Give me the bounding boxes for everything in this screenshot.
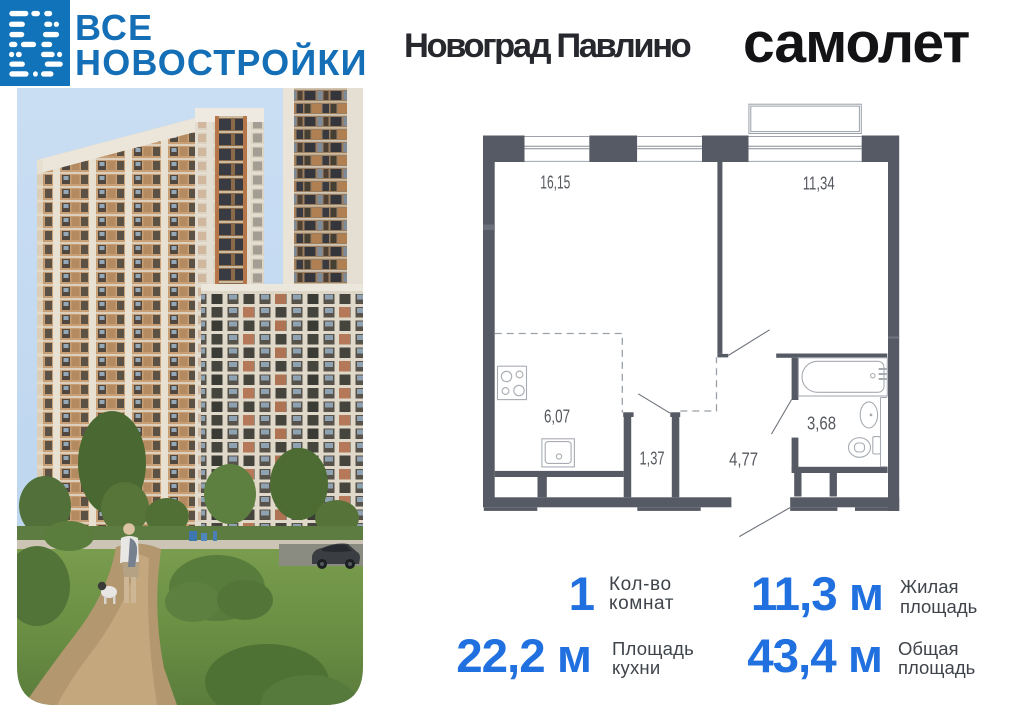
svg-text:3,68: 3,68	[807, 414, 836, 434]
svg-text:16,15: 16,15	[540, 173, 570, 193]
svg-text:11,34: 11,34	[803, 173, 835, 193]
svg-text:6,07: 6,07	[544, 406, 570, 426]
svg-text:4,77: 4,77	[729, 450, 758, 470]
svg-text:1,37: 1,37	[640, 449, 665, 469]
